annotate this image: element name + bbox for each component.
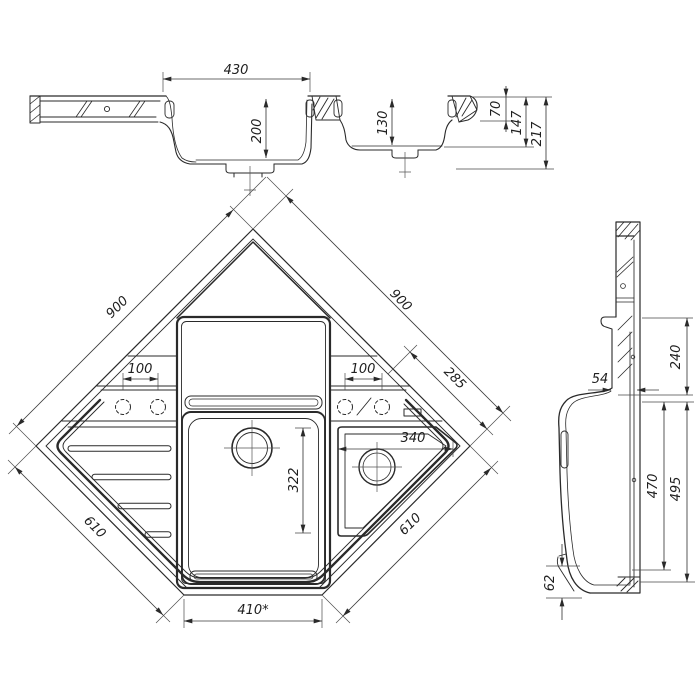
dim-bowl-width: 430 (224, 63, 249, 78)
main-bowl (182, 412, 325, 584)
plan-dimensions: 900 900 285 100 100 340 (8, 177, 511, 628)
faucet-deck-lines (62, 356, 442, 427)
side-outline (557, 222, 640, 593)
tap-hole (338, 400, 353, 415)
dim-tap-spacing-left: 100 (128, 362, 153, 377)
dim-overall-height: 217 (530, 121, 545, 147)
dim-front-lip: 62 (543, 575, 558, 592)
dim-front-width: 410* (237, 603, 269, 618)
section-outline (30, 96, 477, 196)
rear-deck-step (177, 242, 330, 318)
sink-technical-drawing: 430 200 130 70 147 217 (0, 0, 700, 700)
tap-hole (375, 400, 390, 415)
tap-hole (151, 400, 166, 415)
main-bowl-module (177, 317, 330, 588)
dim-outer-depth: 495 (669, 477, 684, 502)
tap-hole (116, 400, 131, 415)
dim-rim-to-deck: 70 (489, 101, 504, 118)
dim-small-bowl-total: 147 (510, 110, 525, 136)
dim-upper-section: 240 (669, 345, 684, 370)
wing-fixing-hole (104, 106, 109, 111)
drawing-canvas: 430 200 130 70 147 217 (0, 0, 700, 700)
section-view: 430 200 130 70 147 217 (30, 63, 554, 196)
section-dimensions: 430 200 130 70 147 217 (163, 63, 554, 169)
dim-edge-right: 900 (386, 286, 414, 314)
dim-main-bowl-length: 322 (287, 468, 302, 493)
side-view: 54 240 470 495 62 (543, 222, 695, 620)
dim-main-bowl-depth: 200 (250, 119, 265, 144)
dim-ledge-thickness: 54 (592, 372, 609, 387)
dim-inner-depth: 470 (646, 474, 661, 499)
side-dimensions: 54 240 470 495 62 (543, 318, 695, 620)
dim-front-edge-left: 610 (80, 513, 108, 541)
dim-tap-spacing-right: 100 (351, 362, 376, 377)
faucet-holes (116, 398, 422, 416)
plan-view: 900 900 285 100 100 340 (8, 177, 511, 628)
dim-small-bowl-depth: 130 (376, 111, 391, 136)
dim-front-edge-right: 610 (396, 510, 424, 538)
dim-corner-to-edge: 285 (440, 364, 468, 392)
dim-small-bowl-width: 340 (401, 431, 426, 446)
dim-edge-left: 900 (103, 293, 131, 321)
